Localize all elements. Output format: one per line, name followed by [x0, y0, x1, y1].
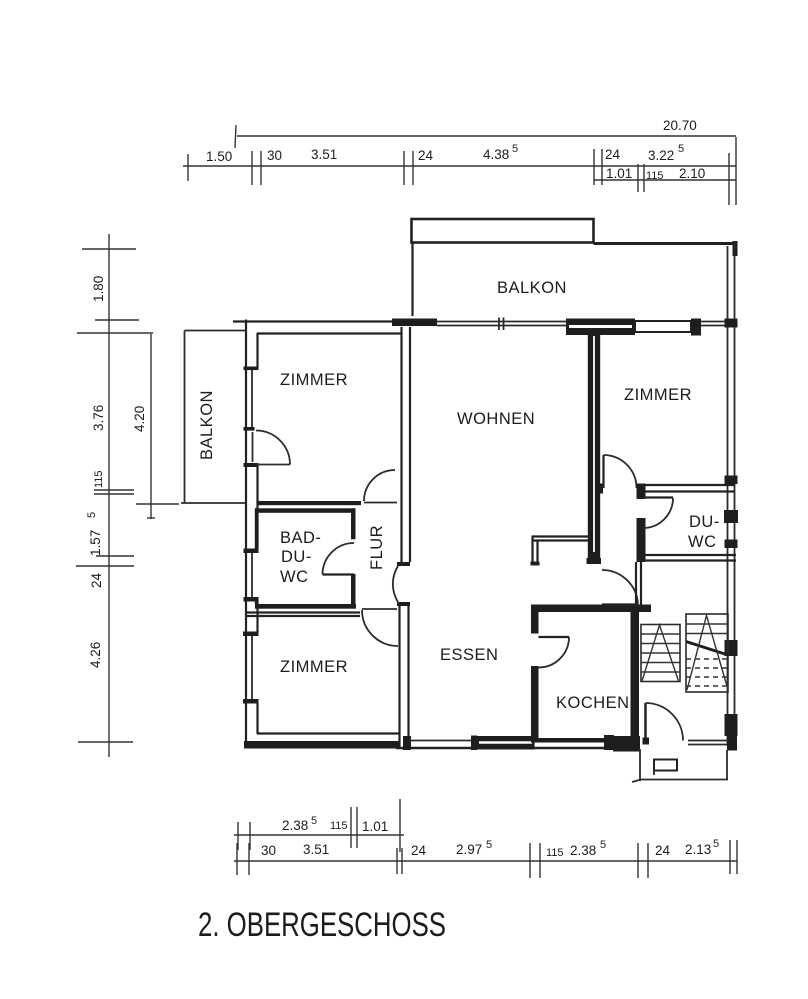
svg-text:FLUR: FLUR — [368, 525, 386, 570]
svg-text:BALKON: BALKON — [497, 279, 567, 297]
svg-text:115: 115 — [546, 847, 564, 859]
svg-text:WC: WC — [688, 533, 717, 551]
svg-text:2.10: 2.10 — [679, 166, 705, 181]
svg-text:WOHNEN: WOHNEN — [457, 410, 535, 428]
svg-text:1.01: 1.01 — [606, 166, 632, 181]
svg-text:BAD-: BAD- — [280, 529, 321, 547]
svg-text:30: 30 — [261, 843, 276, 858]
svg-text:5: 5 — [311, 815, 317, 827]
svg-text:1.57: 1.57 — [88, 530, 103, 556]
svg-text:4.20: 4.20 — [132, 406, 147, 432]
svg-text:115: 115 — [330, 820, 348, 832]
svg-text:BALKON: BALKON — [198, 390, 216, 460]
svg-text:2.38: 2.38 — [282, 818, 308, 833]
svg-text:WC: WC — [280, 568, 309, 586]
svg-text:2.97: 2.97 — [456, 842, 482, 857]
svg-text:24: 24 — [418, 148, 434, 163]
svg-text:5: 5 — [512, 143, 518, 155]
svg-text:1.50: 1.50 — [206, 149, 232, 164]
svg-text:3.51: 3.51 — [311, 147, 337, 162]
svg-text:5: 5 — [713, 838, 719, 850]
svg-text:30: 30 — [267, 148, 282, 163]
svg-text:ZIMMER: ZIMMER — [280, 371, 348, 389]
svg-text:ZIMMER: ZIMMER — [280, 658, 348, 676]
svg-text:DU-: DU- — [281, 548, 312, 566]
svg-text:1.80: 1.80 — [91, 276, 106, 302]
svg-text:ESSEN: ESSEN — [440, 646, 498, 664]
svg-text:5: 5 — [86, 512, 98, 518]
svg-text:24: 24 — [655, 843, 671, 858]
svg-text:DU-: DU- — [689, 513, 720, 531]
svg-text:3.76: 3.76 — [91, 405, 106, 431]
svg-text:4.38: 4.38 — [483, 147, 509, 162]
svg-text:4.26: 4.26 — [88, 642, 103, 668]
svg-text:5: 5 — [486, 839, 492, 851]
svg-text:24: 24 — [605, 147, 621, 162]
svg-text:24: 24 — [89, 572, 104, 588]
svg-text:5: 5 — [600, 839, 606, 851]
svg-text:115: 115 — [93, 470, 105, 488]
svg-text:20.70: 20.70 — [663, 118, 697, 133]
svg-text:1.01: 1.01 — [362, 819, 388, 834]
svg-text:2.13: 2.13 — [685, 842, 711, 857]
svg-text:2.38: 2.38 — [570, 843, 596, 858]
svg-text:24: 24 — [411, 843, 427, 858]
svg-text:ZIMMER: ZIMMER — [624, 386, 692, 404]
svg-text:115: 115 — [646, 170, 664, 182]
svg-text:3.51: 3.51 — [303, 842, 329, 857]
svg-text:KOCHEN: KOCHEN — [556, 694, 630, 712]
svg-text:2. OBERGESCHOSS: 2. OBERGESCHOSS — [198, 906, 446, 944]
svg-text:3.22: 3.22 — [648, 148, 674, 163]
svg-text:5: 5 — [678, 143, 684, 155]
